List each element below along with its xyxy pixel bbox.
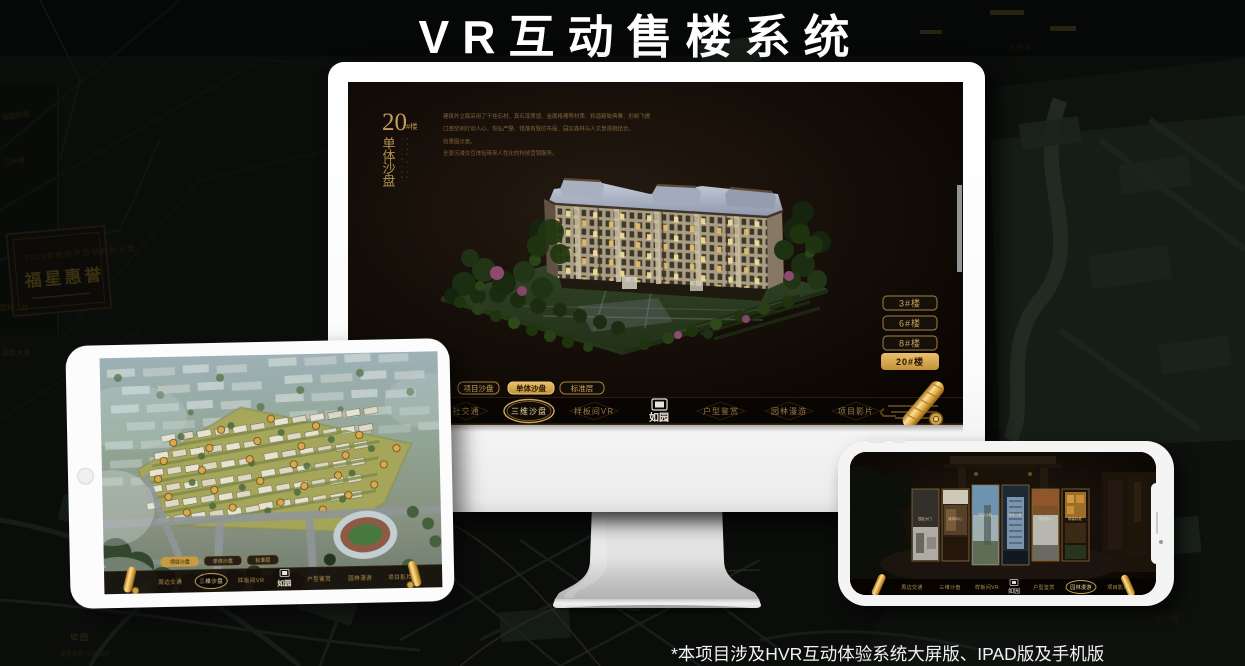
svg-text:项目沙盘: 项目沙盘 [978,512,992,517]
svg-text:标准层: 标准层 [571,383,594,393]
svg-text:如园: 如园 [277,578,291,587]
svg-text:三维沙盘: 三维沙盘 [939,584,961,591]
svg-text:园林漫游: 园林漫游 [771,406,807,416]
svg-text:接待中心: 接待中心 [948,516,962,521]
svg-text:盘: 盘 [382,174,395,189]
svg-text:T: T [406,170,408,174]
svg-text:四新大道: 四新大道 [2,348,30,357]
svg-text:#楼: #楼 [406,121,418,131]
svg-text:如园: 如园 [649,411,669,424]
svg-text:V: V [401,137,403,141]
svg-text:如园: 如园 [1008,587,1020,595]
svg-text:E: E [406,175,408,179]
svg-text:国博二路: 国博二路 [0,303,28,312]
svg-text:样板间VR: 样板间VR [574,406,614,416]
svg-text:S: S [406,160,408,164]
svg-text:项目沙盘: 项目沙盘 [464,383,494,393]
svg-text:福星惠誉·汉阳四新: 福星惠誉·汉阳四新 [60,650,110,658]
svg-text:3#楼: 3#楼 [899,298,921,309]
svg-text:S: S [406,137,408,141]
svg-text:E: E [401,175,403,179]
svg-text:标准层: 标准层 [255,557,270,564]
svg-text:如园: 如园 [70,632,90,642]
svg-text:江城大道: 江城大道 [1150,613,1178,622]
svg-text:20: 20 [382,109,407,136]
svg-text:样板间VR: 样板间VR [975,584,999,591]
svg-text:H: H [401,170,403,174]
svg-text:20#楼: 20#楼 [896,356,924,367]
svg-text:户型鉴赏: 户型鉴赏 [1033,584,1055,591]
svg-text:三维沙盘: 三维沙盘 [511,406,547,416]
svg-text:社交通: 社交通 [453,406,480,416]
svg-text:N: N [406,147,408,151]
svg-text:户型鉴赏: 户型鉴赏 [703,406,739,416]
svg-text:园区大门: 园区大门 [918,516,932,521]
svg-text:项目影片: 项目影片 [838,406,874,416]
svg-text:6#楼: 6#楼 [899,318,921,329]
svg-text:8#楼: 8#楼 [899,338,921,349]
svg-text:A: A [401,157,403,161]
svg-text:单体沙盘: 单体沙盘 [516,383,546,393]
svg-text:园林漫游: 园林漫游 [1070,584,1092,591]
svg-text:项目沙盘: 项目沙盘 [170,558,190,565]
svg-text:楼栋沙盘: 楼栋沙盘 [1008,512,1022,517]
svg-text:单体沙盘: 单体沙盘 [213,558,233,565]
svg-text:T: T [401,165,403,169]
svg-text:精装标准: 精装标准 [1068,516,1082,521]
svg-text:A: A [406,142,408,146]
svg-text:周边交通: 周边交通 [901,584,923,591]
svg-text:样板展示: 样板展示 [1038,516,1052,521]
